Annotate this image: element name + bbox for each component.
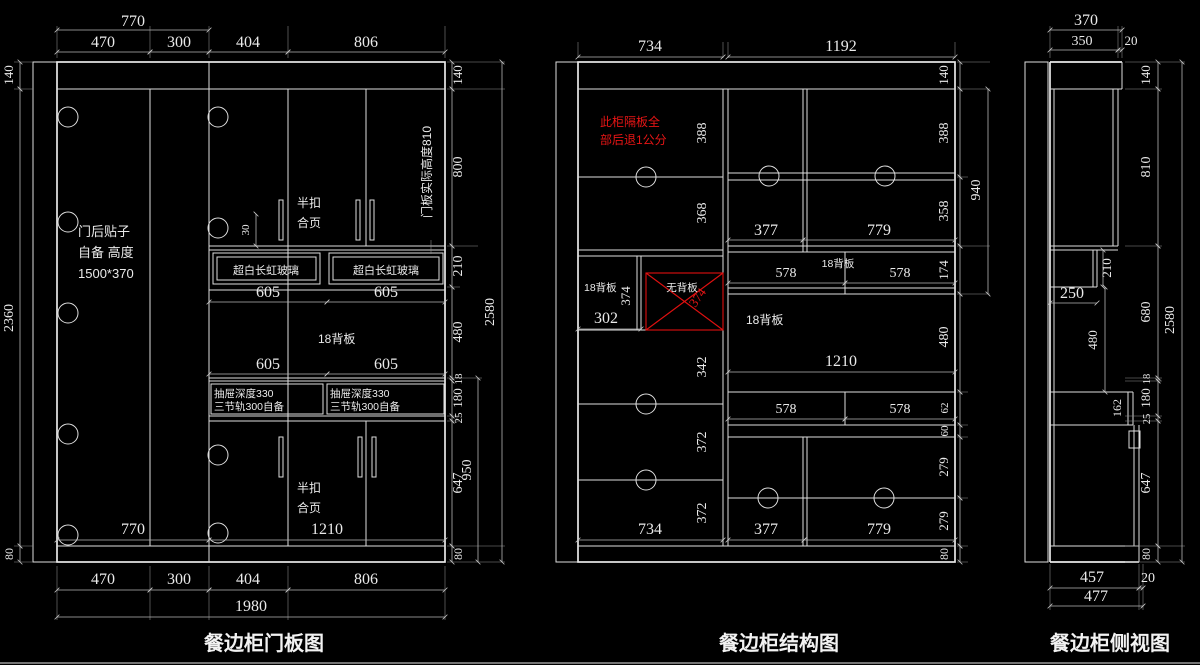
dim-25: 25 [1142,414,1153,425]
dim-1980: 1980 [235,598,267,615]
dim-174: 174 [936,260,951,280]
dim-2360: 2360 [2,304,17,332]
cabinet-structure-lines [57,62,445,562]
title-structure: 餐边柜结构图 [719,631,839,655]
wall-section-hatch [33,62,57,562]
dim-734-top: 734 [638,38,662,55]
drawer-note-1b: 三节轨300自备 [214,400,285,413]
wall-section-hatch [556,62,578,562]
dim-377-bottom: 377 [754,521,778,538]
door-note-line1: 门后贴子 [78,224,130,239]
hinge-note-lower-2: 合页 [297,500,321,515]
backboard-label-row: 18背板 [822,257,855,270]
dim-480: 480 [937,327,952,348]
dim-358: 358 [937,201,952,222]
backboard-label: 18背板 [318,332,355,346]
hinge-note-lower-1: 半扣 [297,481,321,495]
backboard-label-big: 18背板 [746,313,783,327]
dim-300-top: 300 [167,34,191,51]
dim-388-leftcol: 388 [695,123,710,144]
dim-779-mid: 779 [867,222,891,239]
dim-370: 370 [1074,12,1098,29]
dim-404-bottom: 404 [236,571,260,588]
dim-605-b: 605 [374,284,398,301]
hinge-note-upper-2: 合页 [297,215,321,230]
door-panel-drawing: 770 470 300 404 806 470 300 404 806 1980… [1,13,505,620]
door-note-line2: 自备 高度 [78,245,134,260]
cabinet-outline [57,62,445,562]
dim-950: 950 [460,460,475,481]
dim-342: 342 [695,357,710,378]
dim-404-top: 404 [236,34,260,51]
dim-806-bottom: 806 [354,571,378,588]
dim-578-1a: 578 [776,266,797,281]
dim-578-2a: 578 [776,402,797,417]
dim-377-mid: 377 [754,222,778,239]
dim-30: 30 [240,224,252,236]
dim-140-left: 140 [1,65,16,85]
side-view-drawing: 370 350 20 140 810 680 18 180 25 647 80 … [1025,12,1185,610]
dimension-lines [20,30,502,617]
drawer-note-2b: 三节轨300自备 [330,400,401,413]
dim-1210: 1210 [825,353,857,370]
structure-drawing: 734 1192 734 377 779 377 779 578 578 578… [556,38,990,562]
dim-180: 180 [450,388,465,408]
dim-210: 210 [1099,258,1114,278]
dim-250: 250 [1060,285,1084,302]
dim-2580: 2580 [1163,306,1178,334]
cabinet-profile-outline [1050,62,1139,562]
dim-1210-base: 1210 [311,521,343,538]
dim-62: 62 [939,403,951,414]
dim-605-a: 605 [256,284,280,301]
title-door-panel: 餐边柜门板图 [204,631,324,655]
dim-810: 810 [1139,157,1154,178]
dim-800: 800 [451,157,466,178]
door-note-line3: 1500*370 [78,266,134,281]
dim-680: 680 [1139,302,1154,323]
dim-806-top: 806 [354,34,378,51]
extension-lines [14,26,505,620]
cad-canvas: 770 470 300 404 806 470 300 404 806 1980… [0,0,1200,665]
dim-770-top: 770 [121,13,145,30]
cabinet-profile-lines [1050,62,1139,562]
dim-350: 350 [1072,34,1093,49]
dim-605-c: 605 [256,356,280,373]
dim-470-top: 470 [91,34,115,51]
dim-20-top: 20 [1125,33,1138,48]
dim-20-bottom: 20 [1141,571,1155,586]
dim-80-right: 80 [451,548,465,560]
dim-770-base: 770 [121,521,145,538]
drawer-note-2a: 抽屉深度330 [330,387,390,400]
hinge-note-upper-1: 半扣 [297,196,321,210]
door-handle-circles [58,107,228,545]
red-note-line1: 此柜隔板全 [600,114,660,129]
dim-210: 210 [451,256,466,277]
dim-457: 457 [1080,569,1104,586]
dim-279-a: 279 [936,457,951,477]
no-backboard-label: 无背板 [666,281,698,294]
dim-374-white: 374 [618,286,633,306]
glass-label-2: 超白长虹玻璃 [353,263,419,277]
dim-477: 477 [1084,588,1108,605]
dim-140: 140 [936,65,951,85]
dim-60: 60 [939,425,951,437]
dim-578-2b: 578 [890,402,911,417]
dim-368: 368 [695,203,710,224]
dim-80-left: 80 [2,548,16,560]
dim-18: 18 [1142,374,1153,385]
dim-578-1b: 578 [890,266,911,281]
red-note-line2: 部后退1公分 [600,132,667,147]
dim-162: 162 [1110,399,1124,417]
dim-18: 18 [453,373,465,385]
dim-480: 480 [451,322,466,343]
dim-372-a: 372 [695,432,710,453]
dim-470-bottom: 470 [91,571,115,588]
cabinet-drawing-svg: 770 470 300 404 806 470 300 404 806 1980… [0,0,1200,665]
dim-2580: 2580 [483,298,498,326]
dim-80: 80 [937,548,951,560]
glass-label-1: 超白长虹玻璃 [233,263,299,277]
door-height-note: 门板实际高度810 [419,126,434,218]
dim-1192: 1192 [825,38,856,55]
dim-140: 140 [1138,65,1153,85]
dim-372-b: 372 [695,503,710,524]
dim-80: 80 [1139,548,1153,560]
dim-779-bottom: 779 [867,521,891,538]
dim-605-d: 605 [374,356,398,373]
backboard-label-leftcol: 18背板 [584,281,617,294]
drawer-note-1a: 抽屉深度330 [214,387,274,400]
dim-25: 25 [453,412,465,424]
dim-388-chain: 388 [937,123,952,144]
dim-279-b: 279 [936,511,951,531]
title-side-view: 餐边柜侧视图 [1050,631,1170,655]
dim-180: 180 [1138,388,1153,408]
wall-section-hatch [1025,62,1048,562]
dim-940: 940 [969,180,984,201]
dim-734-bottom: 734 [638,521,662,538]
dim-480: 480 [1085,330,1100,350]
shelf-pin-circles [636,166,895,508]
dim-647: 647 [1139,473,1154,494]
dim-302: 302 [594,310,618,327]
dim-300-bottom: 300 [167,571,191,588]
dim-140-right: 140 [450,65,465,85]
